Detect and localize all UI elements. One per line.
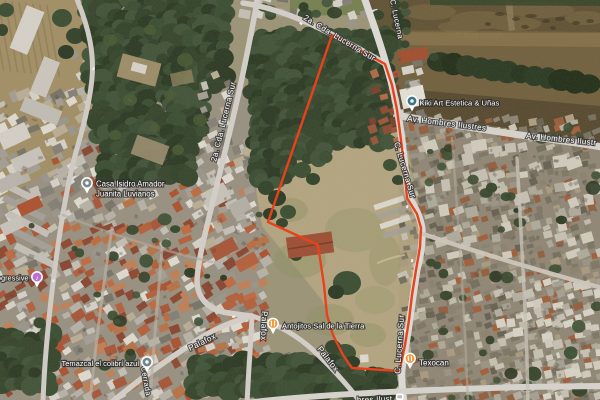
svg-text:bres Ilust: bres Ilust	[357, 394, 393, 400]
svg-text:Casa Isidro Amador: Casa Isidro Amador	[96, 180, 165, 189]
svg-text:Palafox: Palafox	[259, 311, 269, 341]
svg-text:© 2018 Google: © 2018 Google	[456, 32, 503, 40]
svg-text:Texocan: Texocan	[419, 359, 449, 368]
svg-text:progressive: progressive	[0, 274, 29, 283]
svg-text:Temazcal el colibrí azul: Temazcal el colibrí azul	[61, 359, 139, 368]
svg-text:♪: ♪	[35, 275, 39, 282]
svg-text:Kiki Art Estetica & Uñas: Kiki Art Estetica & Uñas	[420, 99, 500, 108]
svg-text:Juanita Luvianos: Juanita Luvianos	[96, 190, 155, 199]
svg-text:Antojitos Sal de la Tierra: Antojitos Sal de la Tierra	[282, 322, 365, 331]
